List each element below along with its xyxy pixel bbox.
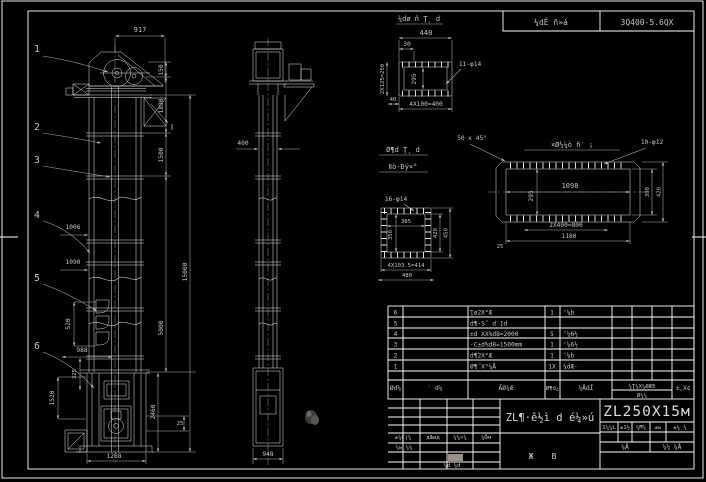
tb-row3: ¼d ¼d [444, 463, 461, 469]
bom-row-qty: 1X [548, 364, 556, 371]
detail-inlet-flange: 16-φ14 385 350 420 450 4X103.5=414 480 [378, 196, 453, 280]
dim-1890: 1890 [158, 98, 165, 113]
balloon-3: 3 [34, 155, 40, 166]
dim-15000: 15000 [182, 262, 189, 281]
bom-row-no: 2 [394, 353, 398, 360]
cad-drawing: ¼dÊ ñ»á 3Q400-5.6QX Ⅰ 917 150 1890 1500 … [0, 0, 706, 482]
dim-440: 440 [420, 29, 433, 37]
tb-right-c2: ±1½ [620, 424, 631, 431]
bom-row-name: d¶·S˝ d′1d [470, 319, 508, 328]
dim-2x400: 2X400=800 [549, 222, 583, 229]
dim-4x100: 4X100=400 [409, 101, 443, 108]
header-strip: ¼dÊ ñ»á 3Q400-5.6QX [503, 11, 694, 31]
tb-right-c3: ¼Ħ¼ [636, 425, 647, 431]
balloon-2: 2 [34, 122, 40, 133]
note-line-1: Ø¶d Ţ¸ d [386, 146, 420, 154]
dim-480: 480 [402, 273, 412, 279]
bom-row-mat: ʻ¼6½ [563, 330, 578, 338]
detail-right-title: ¤Ø½¼ò ñ′ ¡ [551, 141, 593, 149]
stamp-mark [448, 454, 463, 461]
dim-350: 350 [388, 230, 394, 240]
dim-520: 520 [65, 318, 72, 329]
dim-295: 295 [411, 73, 418, 84]
dim-5000: 5000 [158, 320, 165, 335]
dim-988: 988 [76, 347, 87, 354]
sheet-mark-left: Ж [529, 452, 534, 461]
cad-drawing-canvas: ¼dÊ ñ»á 3Q400-5.6QX Ⅰ 917 150 1890 1500 … [0, 0, 706, 482]
dim-4x103: 4X103.5=414 [387, 263, 425, 269]
holes-11-14: 11-φ14 [459, 61, 482, 68]
dim-948: 948 [262, 451, 273, 458]
dim-25b: 25 [497, 244, 504, 250]
side-view: 948 400 [236, 38, 314, 465]
dim-400: 400 [237, 140, 248, 147]
bom-table: 6 Ţø2X°Æ 1 ʻ¼b 5 d¶·S˝ d′1d 4 ±d XX%d8=2… [388, 306, 694, 399]
bom-row-name: d¶2X°Æ [470, 352, 493, 360]
dim-1268: 1268 [107, 453, 122, 460]
bom-row-no: 3 [394, 342, 398, 349]
header-spec-label: 3Q400-5.6QX [621, 18, 674, 27]
bom-header-mat: ¼ÅdĪ [579, 383, 594, 392]
dim-450: 450 [444, 228, 450, 238]
bom-row-name: ±d XX%d8=2000 [470, 331, 519, 338]
tb-right-c1: 1¼¼L [602, 425, 616, 431]
notes: Ø¶d Ţ¸ d Ⅱò-Đý×° [379, 146, 428, 172]
smudge [305, 410, 319, 425]
bom-row-name: Ţø2X°Æ [470, 309, 493, 317]
dim-1006: 1006 [66, 224, 81, 231]
bom-header-no: Ød¼ [390, 384, 401, 392]
section-mark-label: Ⅰ [171, 123, 173, 132]
tb-right-c4: ±ь [655, 425, 662, 431]
chamfer-label: 50 x 45° [457, 134, 487, 142]
dim-40: 40 [390, 97, 397, 103]
bom-row-mat: ʻ¼b [563, 352, 574, 360]
bom-header-weight2: Ø¼¼ [637, 392, 648, 399]
balloon-6: 6 [34, 341, 40, 352]
tb-right-c5: ±¼ ¼ [673, 425, 687, 431]
title-block: ZL¶·ê½ì d é¼»ú ZL250X15м Ж В ±¼Ć|¼ дЉид … [388, 399, 694, 469]
detail-casing-section: ¤Ø½¼ò ñ′ ¡ 50 x 45° 1098 295 10-φ12 390 … [457, 134, 668, 250]
dim-1500: 1500 [158, 147, 165, 162]
bom-row-no: 5 [394, 321, 398, 328]
front-view: Ⅰ [65, 45, 173, 465]
bom-row-mat: ʻ¼b [563, 309, 574, 317]
holes-10-12: 10-φ12 [641, 139, 664, 146]
dim-2x125: 2X125=250 [380, 64, 386, 94]
bom-row-name: Ø¶˝X°¼Å [470, 362, 496, 371]
header-left-label: ¼dÊ ñ»á [534, 16, 568, 27]
bom-row-no: 4 [394, 331, 398, 338]
tb-row1-c3: ¼¼×¼ [453, 435, 467, 441]
detail-top-flange: ¼dø ñ Ţ¸ d 440 30 295 11-φ14 2X125=250 4… [380, 15, 481, 112]
bom-row-mat: ¼dÆ· [563, 363, 578, 371]
bom-row-qty: 5 [550, 331, 554, 338]
bom-header-weight: ¼Ţ¼X¼ØÆE [629, 383, 657, 390]
model-number: ZL250X15м [603, 404, 691, 420]
bom-row-no: 1 [394, 364, 398, 371]
bom-row-qty: 1 [550, 310, 554, 317]
tb-row1-c1: ±¼Ć|¼ [395, 434, 412, 441]
bom-row-qty: 1 [550, 342, 554, 349]
detail-top-title: ¼dø ñ Ţ¸ d [398, 15, 440, 23]
tb-row1-c4: ¼Ōм [481, 434, 492, 441]
sheet-mark-right: В [552, 452, 557, 461]
dim-295b: 295 [528, 190, 535, 201]
dim-420: 420 [657, 187, 663, 197]
tb-mid-c2: ¼¼ ¼Å [663, 442, 682, 451]
dim-1180: 1180 [562, 233, 577, 240]
bom-row-name: ·C±d%d8=1500mm [470, 342, 522, 349]
bom-row-no: 6 [394, 310, 398, 317]
balloon-labels: 1 2 3 4 5 6 [34, 44, 110, 388]
holes-16-14: 16-φ14 [385, 196, 408, 203]
tb-mid-c1: ¼Å [621, 442, 629, 451]
balloon-5: 5 [34, 273, 40, 284]
dim-30: 30 [403, 41, 411, 48]
dim-420b: 420 [433, 228, 439, 238]
dim-1090: 1090 [66, 259, 81, 266]
bom-header-remark: ±,X¢ [676, 385, 691, 392]
dim-917: 917 [134, 26, 147, 34]
dim-1520: 1520 [49, 390, 56, 405]
tb-row1-c2: дЉид [426, 435, 440, 441]
dim-25: 25 [177, 421, 184, 427]
bom-header-dwg: ′ d¼ [428, 384, 443, 392]
bom-header-name: ÃØ¼Æ [499, 383, 514, 392]
dim-150: 150 [158, 64, 165, 75]
dim-2460: 2460 [150, 404, 157, 419]
tb-row2: ¼ь ¼¼ [396, 445, 413, 451]
balloon-4: 4 [34, 210, 40, 221]
bom-row-qty: 1 [550, 353, 554, 360]
dim-390: 390 [645, 187, 651, 197]
bom-header-qty: Ø¶d¿ [546, 385, 559, 392]
dim-1098: 1098 [562, 182, 579, 190]
balloon-1: 1 [34, 44, 40, 55]
front-view-dimensions: 917 150 1890 1500 5000 15000 2460 25 100… [49, 26, 196, 464]
note-line-2: Ⅱò-Đý×° [389, 163, 418, 171]
dim-385: 385 [401, 219, 411, 225]
drawing-title: ZL¶·ê½ì d é¼»ú [506, 412, 595, 424]
bom-row-mat: ʻ¼6½ [563, 341, 578, 349]
